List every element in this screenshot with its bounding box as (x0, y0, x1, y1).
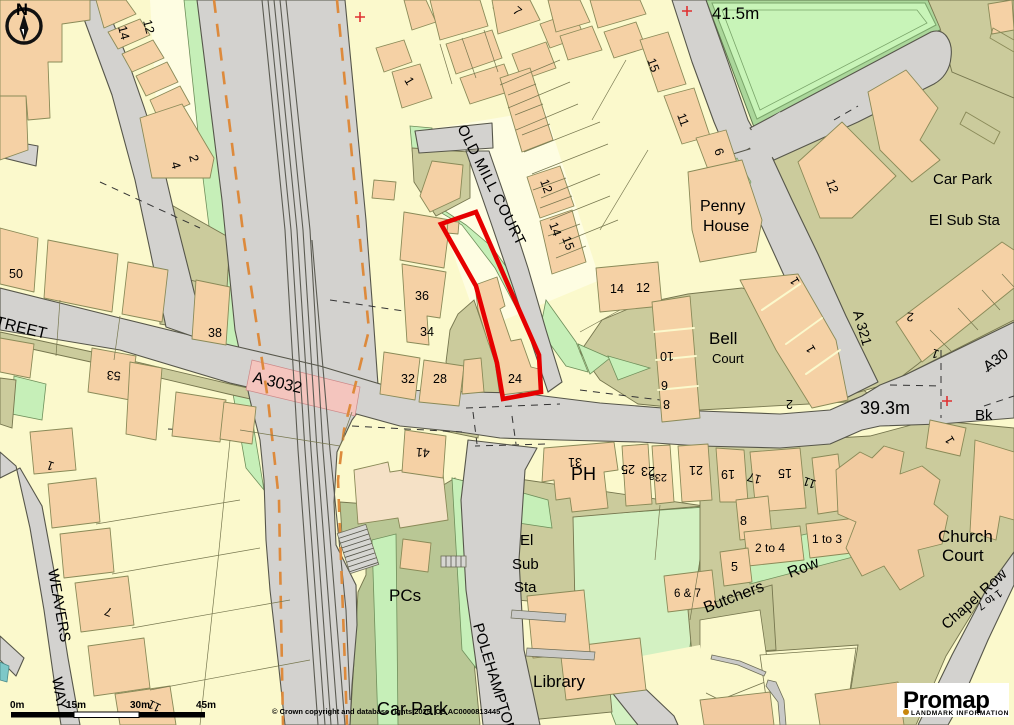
svg-text:1 to 3: 1 to 3 (812, 532, 842, 546)
svg-text:PCs: PCs (389, 586, 421, 605)
svg-text:Bell: Bell (709, 329, 737, 348)
svg-text:41.5m: 41.5m (712, 4, 759, 23)
svg-text:2: 2 (786, 397, 793, 411)
svg-text:El: El (520, 532, 533, 549)
svg-text:N: N (16, 1, 28, 19)
svg-text:Church: Church (938, 527, 993, 546)
svg-text:34: 34 (420, 325, 434, 339)
svg-text:House: House (703, 218, 749, 235)
svg-text:14: 14 (610, 282, 624, 296)
svg-text:8: 8 (663, 397, 670, 411)
svg-text:2 to 4: 2 to 4 (755, 541, 785, 555)
svg-text:0m: 0m (10, 700, 25, 711)
svg-text:38: 38 (208, 326, 222, 340)
svg-text:15m: 15m (66, 700, 86, 711)
svg-text:Bk: Bk (975, 407, 993, 424)
svg-text:15: 15 (778, 466, 792, 480)
svg-text:6: 6 (661, 378, 668, 392)
svg-text:Car Park: Car Park (933, 171, 993, 188)
svg-text:39.3m: 39.3m (860, 398, 910, 418)
svg-text:Penny: Penny (700, 198, 745, 215)
svg-text:19: 19 (721, 467, 735, 481)
svg-text:Sub: Sub (512, 556, 539, 573)
svg-text:28: 28 (433, 372, 447, 386)
svg-text:Library: Library (533, 672, 585, 691)
svg-text:53: 53 (106, 368, 121, 383)
svg-text:5: 5 (731, 560, 738, 574)
svg-text:10: 10 (660, 349, 674, 363)
svg-text:12: 12 (636, 281, 650, 295)
svg-text:2: 2 (906, 309, 914, 324)
svg-text:© Crown copyright and database: © Crown copyright and database rights 20… (272, 707, 500, 716)
svg-text:45m: 45m (196, 700, 216, 711)
svg-text:21: 21 (689, 463, 703, 477)
svg-text:30m: 30m (130, 700, 150, 711)
svg-text:Court: Court (942, 546, 984, 565)
svg-text:32: 32 (401, 372, 415, 386)
svg-text:LANDMARK INFORMATION: LANDMARK INFORMATION (911, 710, 1009, 717)
svg-text:Court: Court (712, 351, 744, 366)
svg-text:41: 41 (415, 445, 430, 460)
svg-text:Sta: Sta (514, 579, 537, 596)
svg-text:El Sub Sta: El Sub Sta (929, 212, 1001, 229)
svg-text:23a: 23a (648, 471, 667, 483)
svg-text:25: 25 (621, 462, 635, 476)
svg-text:50: 50 (9, 267, 23, 281)
svg-text:31: 31 (568, 455, 582, 469)
svg-text:24: 24 (508, 372, 522, 386)
svg-text:6 & 7: 6 & 7 (674, 588, 701, 600)
svg-text:36: 36 (415, 289, 429, 303)
svg-text:8: 8 (740, 514, 747, 528)
